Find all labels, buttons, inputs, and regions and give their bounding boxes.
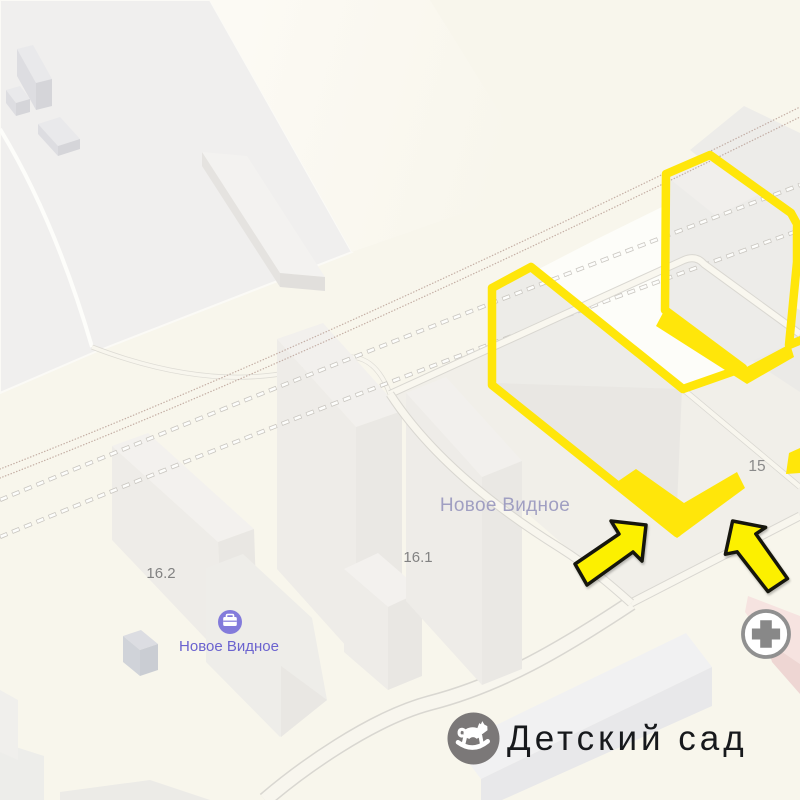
svg-text:16.2: 16.2 [146,565,175,582]
svg-text:Новое Видное: Новое Видное [440,495,570,516]
svg-text:15: 15 [748,458,765,475]
svg-text:Новое Видное: Новое Видное [179,638,279,655]
svg-text:Детский сад: Детский сад [507,719,748,758]
svg-text:16.1: 16.1 [403,549,432,566]
